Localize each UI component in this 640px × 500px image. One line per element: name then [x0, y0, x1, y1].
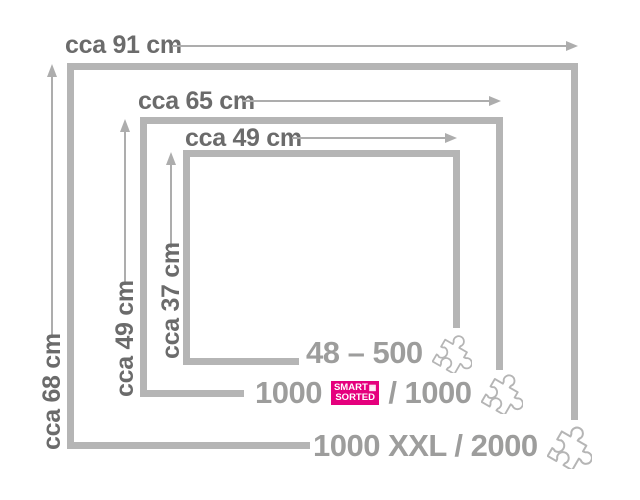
middle-box-top-edge — [140, 117, 503, 124]
inner-width-arrow-line — [292, 137, 445, 139]
outer-width-arrow-line — [172, 45, 566, 47]
badge-sorted-text: SORTED — [335, 393, 375, 403]
puzzle-piece-icon — [547, 424, 592, 469]
size-label-1000-prefix: 1000 — [255, 375, 322, 411]
size-label-1000-suffix: / 1000 — [388, 375, 471, 411]
middle-height-arrow-line — [124, 131, 126, 285]
outer-box-right-edge — [571, 63, 578, 420]
outer-width-label: cca 91 cm — [65, 31, 182, 59]
size-row-1000-puzzles: 1000 SMART▦ SORTED / 1000 — [255, 372, 523, 414]
middle-width-label: cca 65 cm — [138, 87, 255, 115]
outer-width-arrowhead-icon — [566, 41, 578, 51]
middle-box-left-edge — [140, 117, 147, 397]
outer-height-arrow-line — [51, 76, 53, 338]
size-row-xxl-puzzles: 1000 XXL / 2000 — [313, 423, 592, 469]
outer-height-label: cca 68 cm — [38, 333, 66, 450]
puzzle-size-diagram: cca 91 cm cca 65 cm cca 49 cm cca 68 cm … — [0, 0, 640, 500]
puzzle-piece-icon — [481, 372, 523, 414]
size-row-small-puzzles: 48 – 500 — [306, 333, 472, 373]
middle-box-right-edge — [496, 117, 503, 370]
middle-box-bottom-edge — [140, 390, 244, 397]
inner-width-label: cca 49 cm — [185, 124, 302, 152]
middle-width-arrowhead-icon — [489, 96, 501, 106]
inner-height-arrow-line — [170, 164, 172, 248]
middle-width-arrow-line — [243, 100, 489, 102]
size-label-xxl: 1000 XXL / 2000 — [313, 428, 538, 464]
outer-box-bottom-edge — [67, 442, 310, 449]
outer-box-top-edge — [67, 63, 578, 70]
inner-width-arrowhead-icon — [445, 133, 457, 143]
size-label-small: 48 – 500 — [306, 335, 423, 371]
inner-box-right-edge — [453, 150, 460, 328]
inner-height-label: cca 37 cm — [157, 242, 185, 359]
smart-sorted-badge: SMART▦ SORTED — [331, 381, 379, 405]
inner-box-bottom-edge — [183, 358, 299, 365]
puzzle-piece-icon — [432, 333, 472, 373]
grid-icon: ▦ — [369, 384, 377, 392]
outer-box-left-edge — [67, 63, 74, 449]
middle-height-label: cca 49 cm — [111, 280, 139, 397]
